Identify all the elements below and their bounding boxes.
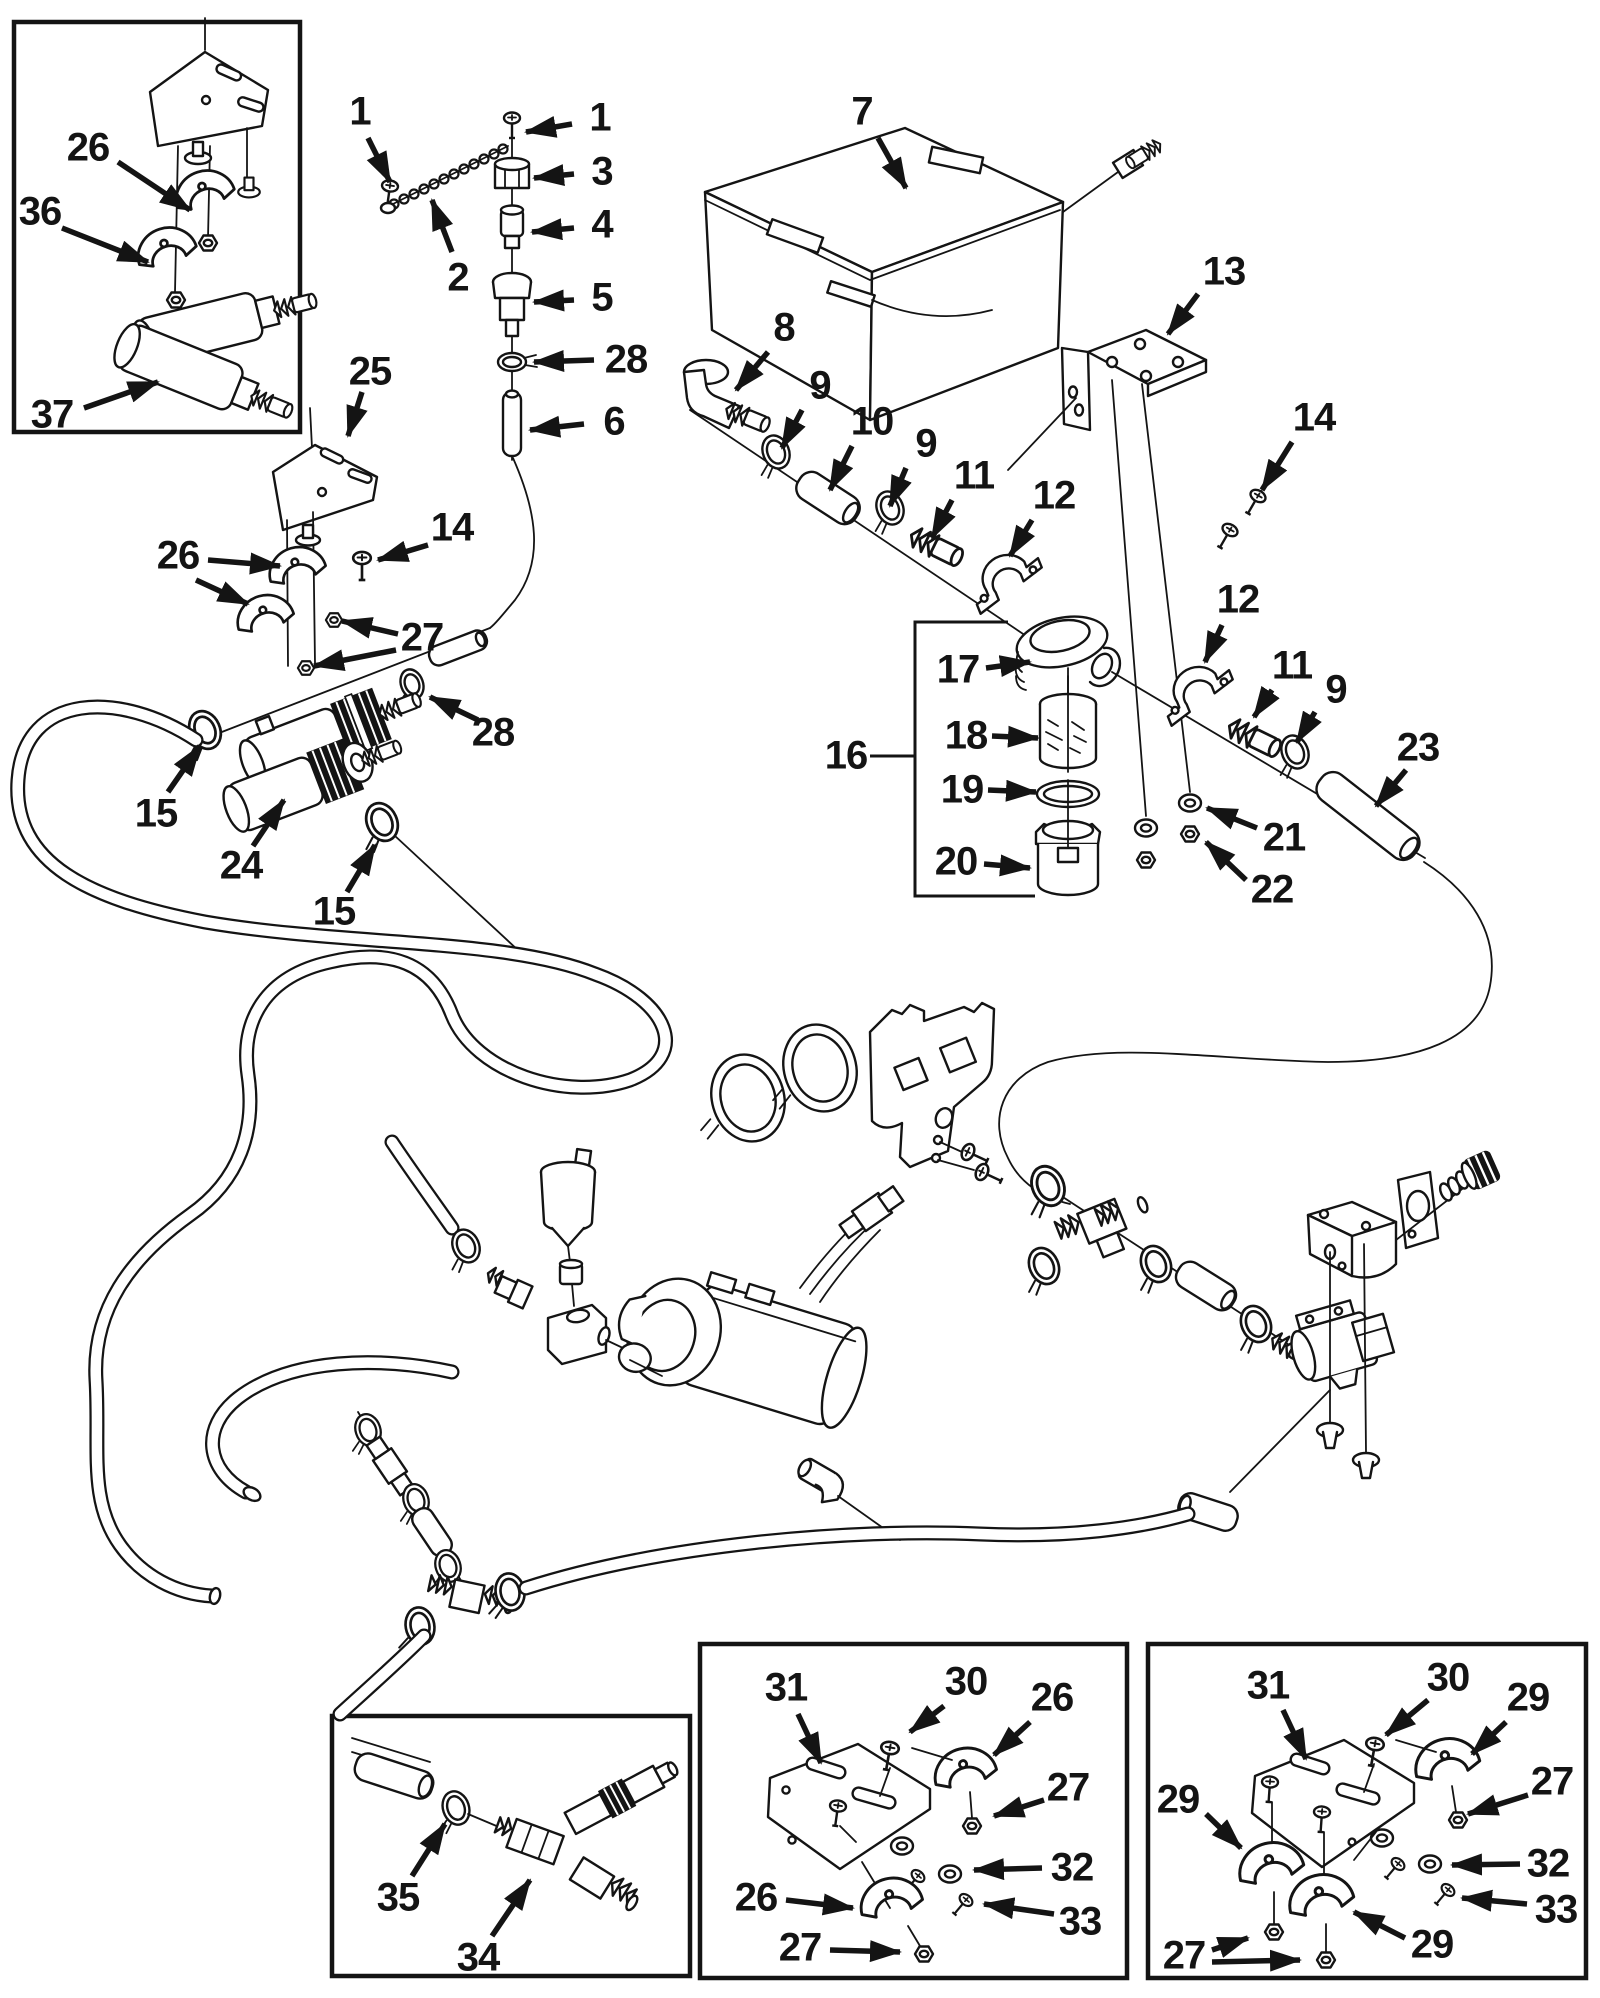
- filter-head-17: [1012, 609, 1120, 694]
- callout-label-5-8: 5: [591, 276, 612, 321]
- callout-label-27-57: 27: [1163, 1934, 1206, 1979]
- callout-arrow-32: [974, 1868, 1042, 1870]
- tube-6: [503, 391, 521, 456]
- clamp-half-29-b: [1283, 1868, 1355, 1919]
- callout-arrow-26: [196, 580, 248, 604]
- callout-label-37-2: 37: [31, 393, 74, 438]
- callout-label-8-14: 8: [773, 306, 794, 351]
- callout-label-35-39: 35: [377, 1876, 420, 1921]
- callout-label-7-11: 7: [851, 90, 872, 135]
- callout-arrow-2: [432, 200, 452, 252]
- callout-label-29-55: 29: [1157, 1778, 1200, 1823]
- callout-arrow-27: [342, 621, 398, 634]
- callout-arrow-3: [534, 174, 574, 178]
- callout-label-27-48: 27: [779, 1926, 822, 1971]
- callout-label-15-38: 15: [313, 890, 356, 935]
- callout-label-26-0: 26: [67, 126, 110, 171]
- callout-label-11-18: 11: [954, 454, 994, 499]
- callout-arrow-33: [1462, 1898, 1527, 1904]
- right-valve-assembly: [1014, 1150, 1501, 1534]
- callout-label-14-13: 14: [1293, 396, 1336, 441]
- callout-label-1-5: 1: [589, 96, 610, 141]
- hose-23: [1311, 766, 1425, 865]
- callout-arrow-12: [1010, 520, 1032, 556]
- callout-arrow-27: [830, 1950, 900, 1952]
- washer-21: [1135, 820, 1157, 837]
- nut-27a: [326, 613, 342, 627]
- callout-arrow-25: [348, 392, 362, 436]
- callout-arrow-29: [1472, 1722, 1506, 1754]
- callout-arrow-33: [984, 1904, 1054, 1914]
- callout-label-27-44: 27: [1047, 1766, 1090, 1811]
- callout-label-24-37: 24: [220, 844, 263, 889]
- elbow-8: [684, 360, 772, 435]
- canister-7: [705, 128, 1165, 420]
- callout-label-21-28: 21: [1263, 816, 1306, 861]
- callout-arrow-26: [208, 560, 280, 566]
- callout-label-30-42: 30: [945, 1660, 988, 1705]
- callout-arrow-20: [984, 864, 1030, 868]
- hose-6-line: [490, 458, 534, 628]
- callout-arrow-29: [1206, 1814, 1241, 1848]
- callout-arrow-27: [994, 1800, 1044, 1816]
- callout-label-19-23: 19: [941, 768, 984, 813]
- clamp-9b: [863, 487, 910, 535]
- callout-label-16-20: 16: [825, 734, 868, 779]
- callout-arrow-27: [1212, 1960, 1300, 1962]
- callout-label-29-51: 29: [1507, 1676, 1550, 1721]
- clamp-half-26b: [231, 588, 295, 634]
- callout-arrow-23: [1376, 770, 1406, 806]
- screw-1-right: [504, 113, 520, 139]
- callout-label-31-41: 31: [765, 1666, 808, 1711]
- callout-arrow-36: [62, 228, 148, 262]
- clamp-15b: [351, 798, 406, 854]
- callout-label-13-12: 13: [1203, 250, 1246, 295]
- clamp-35: [430, 1788, 475, 1835]
- callout-arrow-11: [1254, 690, 1272, 717]
- inline-bowl: [541, 1149, 595, 1306]
- callout-label-34-40: 34: [457, 1936, 500, 1981]
- callout-label-2-4: 2: [447, 256, 468, 301]
- callout-arrow-30: [1386, 1700, 1428, 1735]
- clamp-half-36: [131, 220, 198, 270]
- callout-label-11-26: 11: [1272, 644, 1312, 689]
- left-hose: [18, 707, 666, 1605]
- nut-22: [1137, 853, 1155, 868]
- nut-27-r3: [1317, 1953, 1335, 1968]
- callout-label-18-22: 18: [945, 714, 988, 759]
- screw-33-r: [1431, 1882, 1457, 1909]
- callout-arrow-5: [534, 300, 574, 302]
- callout-arrow-34: [492, 1880, 530, 1936]
- callout-arrow-1: [526, 124, 572, 132]
- callout-label-30-50: 30: [1427, 1656, 1470, 1701]
- callout-arrow-21: [1207, 808, 1257, 828]
- callout-label-17-21: 17: [937, 648, 980, 693]
- washer-32-c: [939, 1866, 961, 1883]
- callout-label-10-16: 10: [851, 400, 894, 445]
- callout-label-26-47: 26: [735, 1876, 778, 1921]
- callout-arrow-14: [1262, 442, 1292, 490]
- fitting-4: [501, 206, 523, 249]
- nut-27-c2: [915, 1947, 933, 1962]
- callout-arrow-35: [412, 1824, 445, 1876]
- callout-label-12-25: 12: [1217, 578, 1260, 623]
- callout-label-12-19: 12: [1033, 474, 1076, 519]
- nut-3: [495, 158, 529, 188]
- callout-label-23-30: 23: [1397, 726, 1440, 771]
- washer-21b: [1179, 795, 1201, 812]
- nut-27-r1: [1449, 1813, 1467, 1828]
- callout-arrow-28: [534, 360, 594, 362]
- callout-arrow-11: [932, 500, 952, 538]
- tube-10: [791, 467, 864, 529]
- valve-body: [1283, 1293, 1400, 1399]
- washer-32-r: [1419, 1856, 1441, 1873]
- callout-label-32-45: 32: [1051, 1846, 1094, 1891]
- callout-arrow-27: [1212, 1938, 1248, 1950]
- callout-arrow-26: [786, 1900, 853, 1908]
- callout-arrow-29: [1354, 1912, 1405, 1938]
- callout-arrow-37: [84, 382, 158, 408]
- chain-2: [381, 145, 508, 214]
- callout-arrow-32: [1452, 1864, 1520, 1865]
- screw-14-right: [1241, 487, 1268, 517]
- nut-27-c1: [963, 1819, 981, 1834]
- callout-label-6-10: 6: [603, 400, 624, 445]
- callout-label-25-31: 25: [349, 350, 392, 395]
- callout-label-36-1: 36: [19, 190, 62, 235]
- strap-12b: [1154, 655, 1240, 726]
- callout-arrow-17: [986, 662, 1030, 668]
- callout-arrow-6: [530, 424, 584, 430]
- inset-mount-bracket-group: [109, 18, 322, 434]
- clamp-half-26-tr: [929, 1742, 998, 1791]
- nut-27b: [298, 661, 314, 675]
- callout-label-26-33: 26: [157, 534, 200, 579]
- callout-arrow-8: [736, 352, 768, 390]
- callout-arrow-19: [988, 790, 1036, 792]
- callout-arrow-15: [168, 746, 200, 792]
- callout-arrow-22: [1206, 842, 1246, 880]
- sensor-5: [493, 273, 531, 336]
- callout-arrow-9: [1297, 712, 1315, 742]
- callout-label-33-54: 33: [1535, 1888, 1578, 1933]
- callout-arrow-14: [378, 545, 428, 560]
- callout-arrow-30: [910, 1706, 944, 1732]
- callout-arrow-15: [347, 845, 375, 892]
- callout-label-9-17: 9: [915, 422, 936, 467]
- callout-arrow-18: [992, 736, 1038, 738]
- wire-connector: [837, 1184, 905, 1242]
- callout-label-9-27: 9: [1325, 668, 1346, 713]
- pump-pair-37: [109, 277, 322, 435]
- clamp-28-top: [498, 353, 537, 371]
- callout-arrow-1: [368, 138, 390, 182]
- coupler-11b: [1224, 716, 1284, 761]
- callout-label-27-34: 27: [401, 616, 444, 661]
- filter-element-18: [1040, 676, 1096, 772]
- bracket-25-group: [231, 408, 377, 675]
- callout-label-1-3: 1: [349, 90, 370, 135]
- nut-27-r2: [1265, 1925, 1283, 1940]
- screw-14-left: [353, 552, 371, 580]
- long-hose-right: [999, 862, 1492, 1204]
- callout-arrow-31: [798, 1714, 821, 1763]
- callout-label-28-9: 28: [605, 338, 648, 383]
- callout-label-3-6: 3: [591, 150, 612, 195]
- nut-22b: [1181, 827, 1199, 842]
- callout-label-15-36: 15: [135, 792, 178, 837]
- callout-label-4-7: 4: [591, 203, 612, 248]
- outlet-elbow: [790, 1456, 849, 1508]
- callout-arrow-4: [532, 228, 574, 232]
- callout-arrow-12: [1205, 625, 1222, 662]
- callout-label-32-53: 32: [1527, 1842, 1570, 1887]
- callout-label-27-52: 27: [1531, 1760, 1574, 1805]
- callout-arrow-9: [782, 410, 802, 448]
- callout-label-31-49: 31: [1247, 1664, 1290, 1709]
- callout-label-28-35: 28: [472, 711, 515, 756]
- callout-arrow-13: [1168, 294, 1198, 334]
- screw-14-right2: [1213, 521, 1240, 551]
- callout-arrow-27: [1468, 1795, 1528, 1814]
- parts-diagram-canvas: 2636371213452867131489109111216171819201…: [0, 0, 1600, 1998]
- callout-label-22-29: 22: [1251, 868, 1294, 913]
- callout-label-33-46: 33: [1059, 1900, 1102, 1945]
- callout-arrow-10: [830, 446, 852, 490]
- callout-arrow-27: [314, 650, 396, 666]
- callout-label-26-43: 26: [1031, 1676, 1074, 1721]
- callout-label-9-15: 9: [809, 364, 830, 409]
- callout-label-20-24: 20: [935, 840, 978, 885]
- gasket-spring-nut: [1396, 1150, 1501, 1248]
- clamp-half-29-tr: [1409, 1732, 1481, 1783]
- center-clamp-bracket-group: [684, 1003, 1005, 1188]
- central-pump-assembly: [392, 1142, 905, 1540]
- callout-label-14-32: 14: [431, 506, 474, 551]
- callout-arrow-31: [1283, 1710, 1306, 1759]
- screw-33-c: [949, 1892, 975, 1919]
- callout-arrow-26: [994, 1722, 1030, 1755]
- callout-label-29-56: 29: [1411, 1923, 1454, 1968]
